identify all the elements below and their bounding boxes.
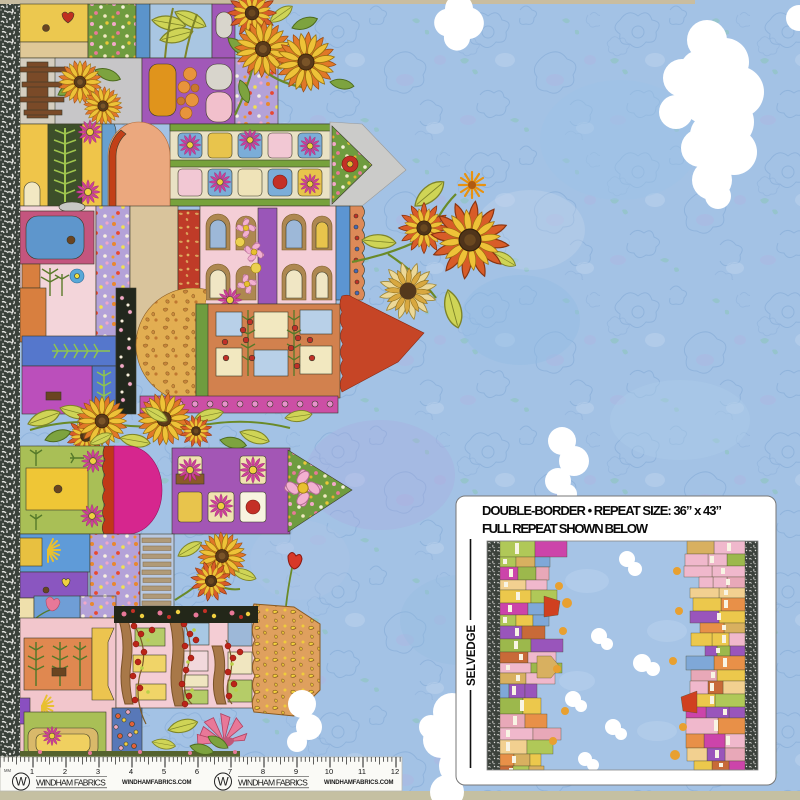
svg-text:12: 12: [391, 767, 399, 776]
svg-text:6: 6: [195, 767, 199, 776]
svg-text:MM: MM: [4, 768, 11, 773]
svg-text:FULL REPEAT SHOWN BELOW: FULL REPEAT SHOWN BELOW: [482, 521, 649, 536]
svg-text:5: 5: [162, 767, 166, 776]
svg-text:8: 8: [261, 767, 265, 776]
svg-text:10: 10: [325, 767, 333, 776]
svg-text:WINDHAM FABRICS: WINDHAM FABRICS: [36, 778, 107, 788]
svg-text:11: 11: [358, 767, 366, 776]
svg-text:W: W: [15, 775, 27, 789]
svg-text:3: 3: [96, 767, 100, 776]
svg-text:4: 4: [129, 767, 133, 776]
svg-text:1: 1: [30, 767, 34, 776]
svg-text:WINDHAMFABRICS.COM: WINDHAMFABRICS.COM: [122, 780, 192, 786]
svg-text:WINDHAMFABRICS.COM: WINDHAMFABRICS.COM: [324, 780, 394, 786]
svg-text:2: 2: [63, 767, 67, 776]
svg-text:W: W: [217, 775, 229, 789]
svg-text:DOUBLE-BORDER • REPEAT SIZE: 3: DOUBLE-BORDER • REPEAT SIZE: 36” x 43”: [482, 503, 722, 518]
svg-text:SELVEDGE: SELVEDGE: [466, 624, 478, 686]
svg-text:9: 9: [294, 767, 298, 776]
svg-text:WINDHAM FABRICS: WINDHAM FABRICS: [238, 778, 309, 788]
